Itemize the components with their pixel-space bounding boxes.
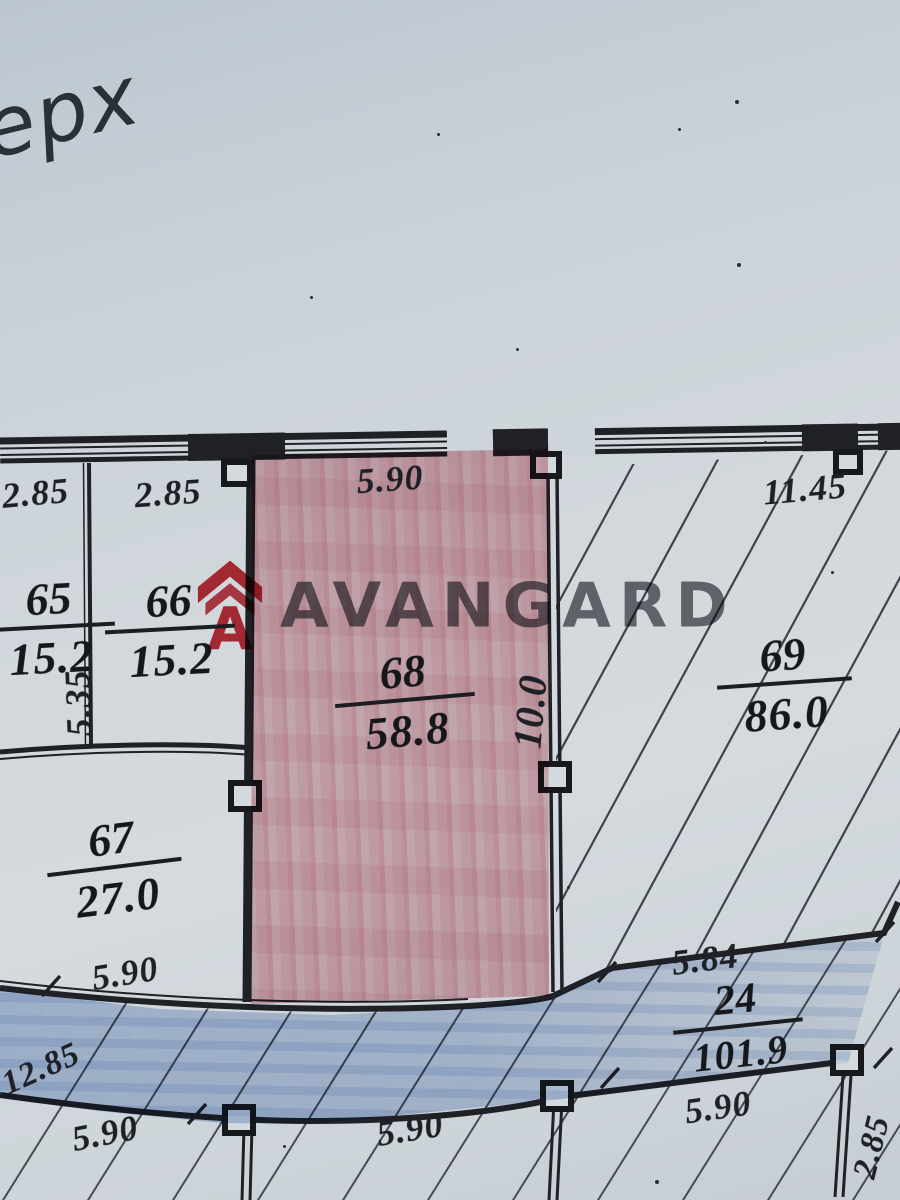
room-number: 65 bbox=[0, 569, 110, 628]
scan-speck bbox=[655, 1180, 659, 1184]
scan-speck bbox=[283, 1145, 286, 1148]
room-area: 58.8 bbox=[341, 698, 475, 762]
dim-top-left: 2.85 bbox=[0, 468, 85, 518]
scan-speck bbox=[310, 296, 313, 299]
door-gap bbox=[447, 428, 493, 457]
scan-speck bbox=[737, 263, 741, 267]
wall-pier bbox=[878, 423, 900, 450]
room-label-69: 69 86.0 bbox=[718, 624, 851, 744]
wall-pier bbox=[802, 424, 858, 452]
avangard-logo-text: AVANGARD bbox=[280, 570, 736, 641]
scanned-floor-plan-photo: ерх bbox=[0, 0, 900, 1200]
dim-top-room66: 2.85 bbox=[107, 468, 230, 518]
scan-speck bbox=[831, 571, 834, 574]
scan-speck bbox=[678, 128, 681, 131]
room-number: 69 bbox=[718, 624, 846, 686]
room-label-68: 68 58.8 bbox=[335, 640, 474, 763]
watermark-logo: A AVANGARD bbox=[196, 558, 736, 652]
room-area: 86.0 bbox=[722, 683, 850, 745]
scan-speck bbox=[567, 886, 570, 889]
room-number: 66 bbox=[107, 571, 230, 630]
room-label-66: 66 15.2 bbox=[107, 571, 233, 689]
room-label-67: 67 27.0 bbox=[46, 805, 184, 931]
scan-speck bbox=[764, 441, 767, 444]
dim-wall-68-69-vertical: 10.0 bbox=[502, 660, 558, 764]
scan-speck bbox=[735, 100, 739, 104]
room-area: 15.2 bbox=[110, 630, 233, 689]
dim-top-room68: 5.90 bbox=[329, 454, 452, 504]
room-label-24: 24 101.9 bbox=[673, 970, 803, 1083]
wall-pier bbox=[188, 433, 285, 462]
scan-speck bbox=[516, 348, 519, 351]
scan-speck bbox=[437, 133, 440, 136]
dim-left-vertical: 5.35 bbox=[55, 657, 100, 748]
